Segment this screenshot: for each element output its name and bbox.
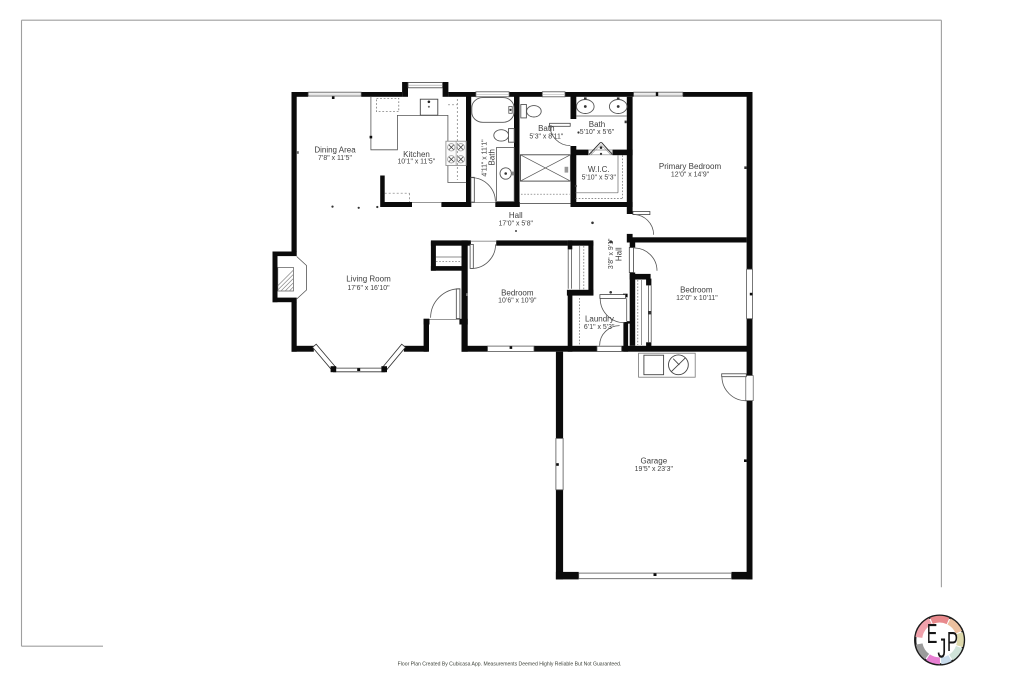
svg-text:Bath: Bath <box>487 149 496 165</box>
svg-text:Dining Area: Dining Area <box>314 145 356 154</box>
svg-text:Garage: Garage <box>640 456 667 465</box>
svg-text:Living Room: Living Room <box>346 275 391 284</box>
svg-text:Floor Plan Created By Cubicasa: Floor Plan Created By Cubicasa App. Meas… <box>398 662 622 668</box>
svg-text:5’10" x 5’6": 5’10" x 5’6" <box>580 129 615 136</box>
svg-text:6’1" x 5’3": 6’1" x 5’3" <box>584 324 615 331</box>
svg-text:Bedroom: Bedroom <box>501 288 534 297</box>
svg-text:17’0" x 5’8": 17’0" x 5’8" <box>499 220 534 227</box>
svg-text:4’11" x 11’1": 4’11" x 11’1" <box>481 139 488 177</box>
svg-text:10’6" x 10’9": 10’6" x 10’9" <box>498 298 537 305</box>
svg-text:Laundry: Laundry <box>585 315 614 324</box>
svg-text:Hall: Hall <box>509 211 523 220</box>
svg-text:Hall: Hall <box>614 247 623 261</box>
svg-text:17’6" x 16’10": 17’6" x 16’10" <box>347 285 390 292</box>
svg-text:19’5" x 23’3": 19’5" x 23’3" <box>635 466 674 473</box>
svg-text:Bath: Bath <box>589 120 605 129</box>
svg-text:J: J <box>937 633 946 664</box>
svg-text:W.I.C.: W.I.C. <box>588 165 610 174</box>
svg-text:Bath: Bath <box>538 124 554 133</box>
svg-text:5’10" x 5’3": 5’10" x 5’3" <box>582 174 617 181</box>
svg-text:10’1" x 11’5": 10’1" x 11’5" <box>397 159 435 166</box>
svg-text:12’0" x 10’11": 12’0" x 10’11" <box>676 295 718 302</box>
svg-text:Bedroom: Bedroom <box>680 286 713 295</box>
svg-text:P: P <box>947 626 958 657</box>
svg-text:12’0" x 14’9": 12’0" x 14’9" <box>671 171 710 178</box>
svg-text:E: E <box>927 618 938 649</box>
svg-text:7’8" x 11’5": 7’8" x 11’5" <box>318 155 352 162</box>
svg-text:Primary Bedroom: Primary Bedroom <box>659 162 722 171</box>
svg-text:5’3" x 8’11": 5’3" x 8’11" <box>529 134 563 141</box>
svg-text:3’8" x 9’1": 3’8" x 9’1" <box>608 238 615 269</box>
svg-text:Kitchen: Kitchen <box>403 150 430 159</box>
